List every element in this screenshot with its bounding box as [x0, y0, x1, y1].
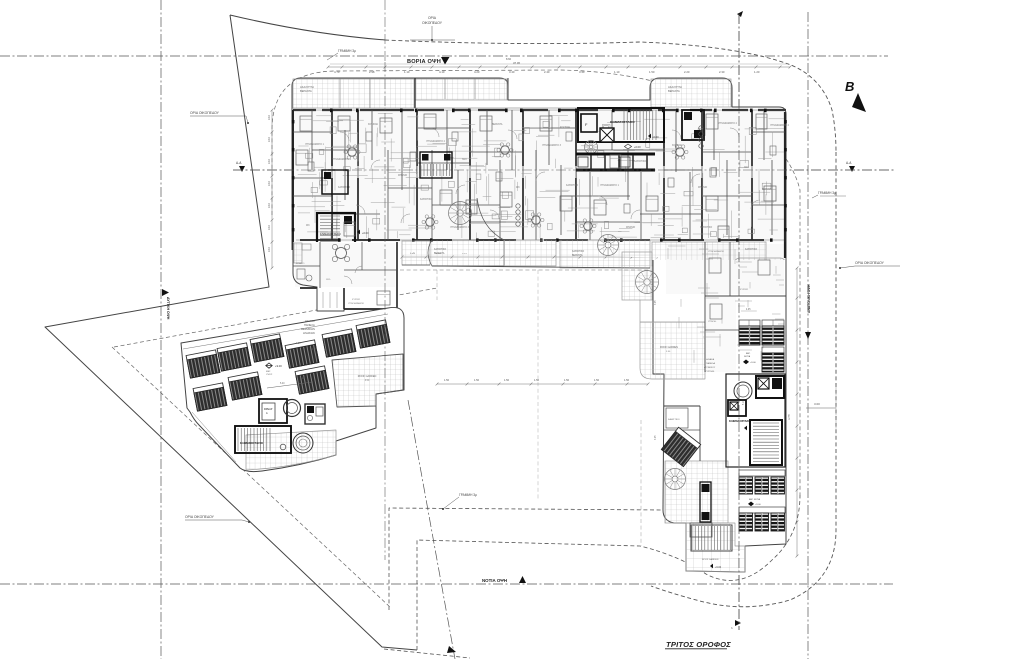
svg-text:ΥΠΝΟΔΩΜΑΤΙΟ 2: ΥΠΝΟΔΩΜΑΤΙΟ 2: [770, 124, 790, 127]
svg-text:ΑΚΑΛΥΠΤΗ: ΑΚΑΛΥΠΤΗ: [300, 85, 314, 89]
svg-text:ΜΠΑΝΙΟ: ΜΠΑΝΙΟ: [626, 226, 635, 229]
svg-text:ΚΛΙΜΑΚΟΣΤΑΣΙΟ: ΚΛΙΜΑΚΟΣΤΑΣΙΟ: [610, 120, 635, 124]
svg-text:ΓΡΑΜΜΗ 3μ: ΓΡΑΜΜΗ 3μ: [818, 191, 836, 195]
svg-text:1.20: 1.20: [754, 70, 760, 74]
svg-text:3.05: 3.05: [655, 300, 657, 305]
svg-text:2.40: 2.40: [544, 70, 550, 74]
svg-text:ΚΟΥΖΙΝΑ: ΚΟΥΖΙΝΑ: [368, 123, 378, 126]
svg-text:ΚΑΘΙΣΤΙΚΟ: ΚΑΘΙΣΤΙΚΟ: [434, 248, 446, 251]
svg-text:ΥΠΝΟΔΩΜΑΤΙΟ 2: ΥΠΝΟΔΩΜΑΤΙΟ 2: [718, 122, 738, 125]
svg-text:ΑΝΑΤΟΛΙΚΗ ΟΨΗ: ΑΝΑΤΟΛΙΚΗ ΟΨΗ: [807, 284, 811, 313]
svg-text:ΒΕΡΑΝΤΑ: ΒΕΡΑΝΤΑ: [572, 254, 583, 257]
svg-text:ΚΑΘΙΣΤΙΚΟ: ΚΑΘΙΣΤΙΚΟ: [572, 250, 584, 253]
svg-text:12.55: 12.55: [789, 414, 791, 420]
svg-text:3.10: 3.10: [267, 224, 271, 230]
svg-text:3.00: 3.00: [814, 402, 820, 406]
svg-text:ΔΥΤΙΚΗ ΟΨΗ: ΔΥΤΙΚΗ ΟΨΗ: [166, 297, 170, 320]
svg-text:ΦΡΕΑΡ: ΦΡΕΑΡ: [264, 408, 273, 411]
svg-text:ΟΡΙΑ ΟΙΚΟΠΕΔΟΥ: ΟΡΙΑ ΟΙΚΟΠΕΔΟΥ: [185, 515, 215, 519]
svg-text:1.10: 1.10: [404, 70, 410, 74]
svg-text:ΘΕΡΜΙΚΩΝ: ΘΕΡΜΙΚΩΝ: [301, 327, 315, 331]
svg-text:ΒΕΡΑΝΤΑ: ΒΕΡΑΝΤΑ: [668, 89, 680, 93]
svg-text:ΓΡΑΜΜΗ 3μ: ΓΡΑΜΜΗ 3μ: [338, 49, 356, 53]
svg-text:ΚΟΥΖΙΝΑ: ΚΟΥΖΙΝΑ: [672, 144, 682, 147]
svg-text:3.40: 3.40: [579, 70, 585, 74]
svg-text:A-A: A-A: [846, 161, 852, 165]
svg-text:5.10: 5.10: [743, 400, 745, 405]
svg-text:3.10: 3.10: [267, 246, 271, 252]
svg-text:1.10: 1.10: [312, 349, 317, 351]
svg-text:WC: WC: [516, 187, 520, 189]
svg-text:4.05: 4.05: [746, 309, 751, 311]
svg-text:ΚΑΘΙΣΤΙΚΟ: ΚΑΘΙΣΤΙΚΟ: [420, 198, 432, 201]
svg-text:ΥΠΝΟΔΩΜΑΤΙΟ 1: ΥΠΝΟΔΩΜΑΤΙΟ 1: [600, 184, 620, 187]
svg-text:2.20: 2.20: [684, 70, 690, 74]
svg-text:ΧΩΛ: ΧΩΛ: [326, 279, 331, 281]
svg-text:ΒΕΡ. ΝΟΤΙΑ: ΒΕΡ. ΝΟΤΙΑ: [749, 498, 761, 501]
svg-text:ΥΠΝΟΔΩΜΑΤΙΟ 1: ΥΠΝΟΔΩΜΑΤΙΟ 1: [305, 143, 325, 146]
svg-text:WC: WC: [306, 225, 310, 227]
svg-text:ΟΡΙΑ: ΟΡΙΑ: [428, 16, 437, 20]
svg-text:1.10: 1.10: [614, 70, 620, 74]
svg-text:1.10: 1.10: [300, 378, 305, 380]
svg-text:ΟΡΙΑ ΟΙΚΟΠΕΔΟΥ: ΟΡΙΑ ΟΙΚΟΠΕΔΟΥ: [190, 111, 220, 115]
svg-text:ΑΚΑΛΥΠΤΗ: ΑΚΑΛΥΠΤΗ: [668, 85, 682, 89]
svg-text:ΥΠΝΟΔΩΜΑΤΙΟ 2: ΥΠΝΟΔΩΜΑΤΙΟ 2: [426, 140, 446, 143]
svg-text:ΥΠΝΟΔΩΜΑΤΙΟ: ΥΠΝΟΔΩΜΑΤΙΟ: [348, 302, 364, 305]
svg-text:ΧΩΛ: ΧΩΛ: [462, 159, 467, 161]
svg-text:3.10: 3.10: [267, 114, 271, 120]
svg-text:ΚΑΘΙΣΤΙΚΟ: ΚΑΘΙΣΤΙΚΟ: [566, 184, 578, 187]
svg-text:1.50: 1.50: [534, 378, 540, 382]
svg-text:ΠΑΝΕΛΑ: ΠΑΝΕΛΑ: [304, 323, 315, 327]
svg-text:ΚΛΙΜΑΚΟΣΤΑΣΙΟ: ΚΛΙΜΑΚΟΣΤΑΣΙΟ: [320, 232, 341, 236]
svg-text:1.50: 1.50: [504, 378, 510, 382]
svg-text:3.40: 3.40: [509, 70, 515, 74]
svg-text:1.50: 1.50: [624, 378, 630, 382]
svg-text:ΟΡΙΑ ΟΙΚΟΠΕΔΟΥ: ΟΡΙΑ ΟΙΚΟΠΕΔΟΥ: [855, 261, 885, 265]
svg-text:5.40: 5.40: [280, 383, 285, 385]
svg-text:2.30: 2.30: [719, 70, 725, 74]
svg-text:ROOF GARDEN: ROOF GARDEN: [702, 558, 719, 561]
svg-text:ΚΛΙΜΑΚΟΣΤΑΣΙΟ: ΚΛΙΜΑΚΟΣΤΑΣΙΟ: [240, 441, 264, 445]
svg-text:2.98: 2.98: [369, 70, 375, 74]
svg-text:ΥΨΟΣ: ΥΨΟΣ: [266, 374, 273, 376]
svg-text:ΒΕΡΑΝΤΑ: ΒΕΡΑΝΤΑ: [492, 123, 503, 126]
svg-text:ΤΡΙΤΟΣ ΟΡΟΦΟΣ: ΤΡΙΤΟΣ ΟΡΟΦΟΣ: [666, 640, 731, 649]
svg-text:ΜΠΑΝΙΟ: ΜΠΑΝΙΟ: [398, 174, 407, 177]
svg-text:1.50: 1.50: [474, 378, 480, 382]
svg-text:3.: 3.: [731, 627, 733, 630]
svg-text:ΜΕΓ.: ΜΕΓ.: [266, 371, 271, 373]
svg-text:ΒΕΡΑΝΤΑ: ΒΕΡΑΝΤΑ: [762, 188, 773, 191]
svg-text:+9.00: +9.00: [275, 364, 282, 368]
svg-text:+9.00: +9.00: [755, 504, 761, 506]
svg-text:ΧΩΛ: ΧΩΛ: [744, 167, 749, 169]
svg-text:3.10: 3.10: [267, 136, 271, 142]
svg-text:3.10: 3.10: [267, 158, 271, 164]
svg-text:+0.00: +0.00: [634, 145, 641, 149]
svg-text:4.10: 4.10: [439, 70, 445, 74]
svg-text:4.10: 4.10: [296, 343, 301, 345]
svg-text:ΥΠΝΟΔΩΜΑΤΙΟ 1: ΥΠΝΟΔΩΜΑΤΙΟ 1: [332, 158, 352, 161]
svg-text:8.60: 8.60: [506, 57, 512, 61]
svg-text:3.10: 3.10: [267, 202, 271, 208]
svg-text:ΒΕΡΑΝΤΑ: ΒΕΡΑΝΤΑ: [300, 89, 312, 93]
svg-text:ΟΙΚΟΠΕΔΟΥ: ΟΙΚΟΠΕΔΟΥ: [422, 21, 443, 25]
svg-text:4.70: 4.70: [334, 70, 340, 74]
svg-text:ΚΟΥΖΙΝΑ: ΚΟΥΖΙΝΑ: [560, 126, 570, 129]
svg-text:ΥΠΝΟΔΩΜΑΤΙΟ 3: ΥΠΝΟΔΩΜΑΤΙΟ 3: [542, 144, 562, 147]
svg-text:47.30: 47.30: [513, 61, 520, 65]
svg-text:4.20: 4.20: [474, 70, 480, 74]
svg-text:1.50: 1.50: [649, 70, 655, 74]
svg-text:+0.00: +0.00: [362, 231, 369, 235]
svg-text:+0.00: +0.00: [652, 135, 659, 139]
svg-text:3.05: 3.05: [655, 435, 657, 440]
svg-text:ROOF GARDEN: ROOF GARDEN: [660, 346, 678, 349]
svg-text:ΚΑΘΙΣΤΙΚΟ: ΚΑΘΙΣΤΙΚΟ: [668, 418, 680, 421]
svg-text:3.10: 3.10: [267, 180, 271, 186]
svg-text:ΒΕΡ.: ΒΕΡ.: [746, 353, 751, 355]
svg-text:ΚΛΙΜΑΚΟΣΤΑΣΙΟ: ΚΛΙΜΑΚΟΣΤΑΣΙΟ: [729, 419, 751, 423]
svg-text:ΥΠΝΟΔΩΜΑΤΙΟ 3: ΥΠΝΟΔΩΜΑΤΙΟ 3: [450, 226, 470, 229]
svg-text:B: B: [845, 79, 854, 94]
svg-text:+9.00: +9.00: [715, 566, 722, 569]
svg-text:1.50: 1.50: [444, 378, 450, 382]
svg-text:+9.00: +9.00: [750, 362, 756, 364]
svg-text:ΓΡΑΜΜΗ 3μ: ΓΡΑΜΜΗ 3μ: [459, 493, 477, 497]
svg-text:A-A: A-A: [236, 161, 242, 165]
svg-text:3.50: 3.50: [365, 380, 370, 382]
svg-text:ΚΥΡΙΩΣ: ΚΥΡΙΩΣ: [352, 299, 361, 301]
svg-text:ΗΛΙΑΚΩΝ: ΗΛΙΑΚΩΝ: [303, 331, 315, 335]
svg-text:ROOF GARDEN: ROOF GARDEN: [358, 375, 377, 378]
svg-text:ΜΠΑΝΙΟ: ΜΠΑΝΙΟ: [698, 186, 707, 189]
svg-text:ΗΛΙΑΚΑ: ΗΛΙΑΚΑ: [305, 319, 315, 323]
svg-text:ΒΕΡΑΝΤΑ: ΒΕΡΑΝΤΑ: [434, 252, 445, 255]
svg-text:1.50: 1.50: [594, 378, 600, 382]
svg-text:1.50: 1.50: [564, 378, 570, 382]
svg-text:ΚΑΘΙΣΤΙΚΟ: ΚΑΘΙΣΤΙΚΟ: [700, 226, 712, 229]
svg-text:ΚΑΘΙΣΤΙΚΟ: ΚΑΘΙΣΤΙΚΟ: [634, 160, 646, 163]
svg-text:ΝΟΤΙΑ: ΝΟΤΙΑ: [744, 355, 751, 358]
svg-text:ΝΟΤΙΑ ΟΨΗ: ΝΟΤΙΑ ΟΨΗ: [482, 578, 507, 583]
svg-text:ΜΠΑΝΙΟ: ΜΠΑΝΙΟ: [296, 262, 305, 265]
